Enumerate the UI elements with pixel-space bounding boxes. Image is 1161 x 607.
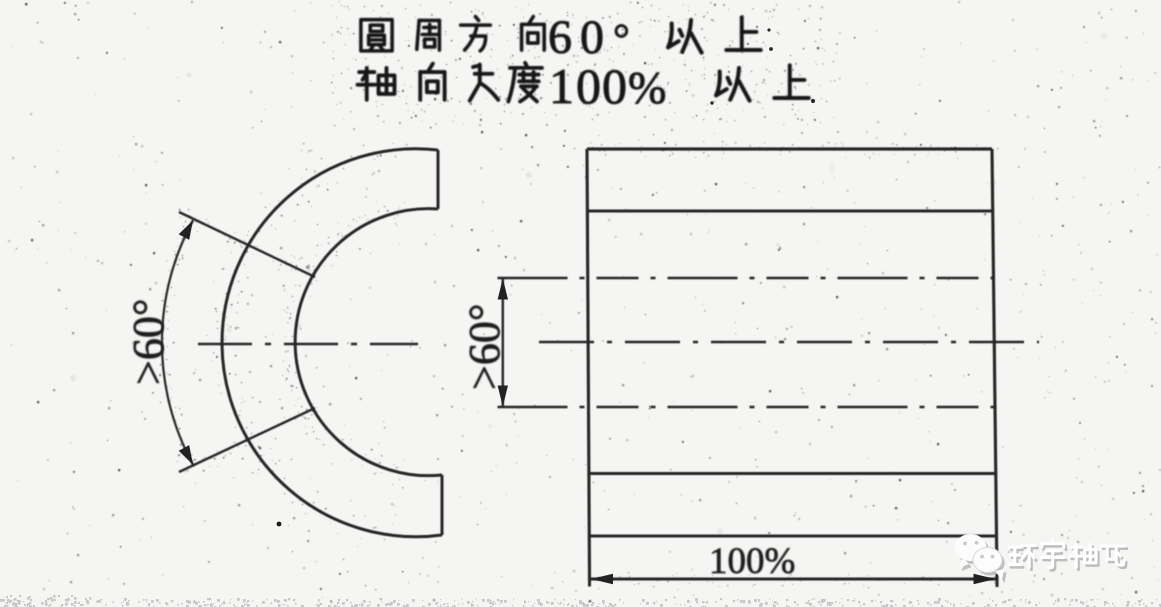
svg-text:100%: 100% <box>709 541 795 582</box>
svg-text:100%: 100% <box>549 58 666 114</box>
svg-text:>60°: >60° <box>124 299 173 385</box>
svg-text:60°: 60° <box>548 11 630 64</box>
svg-text:>60°: >60° <box>460 304 509 390</box>
